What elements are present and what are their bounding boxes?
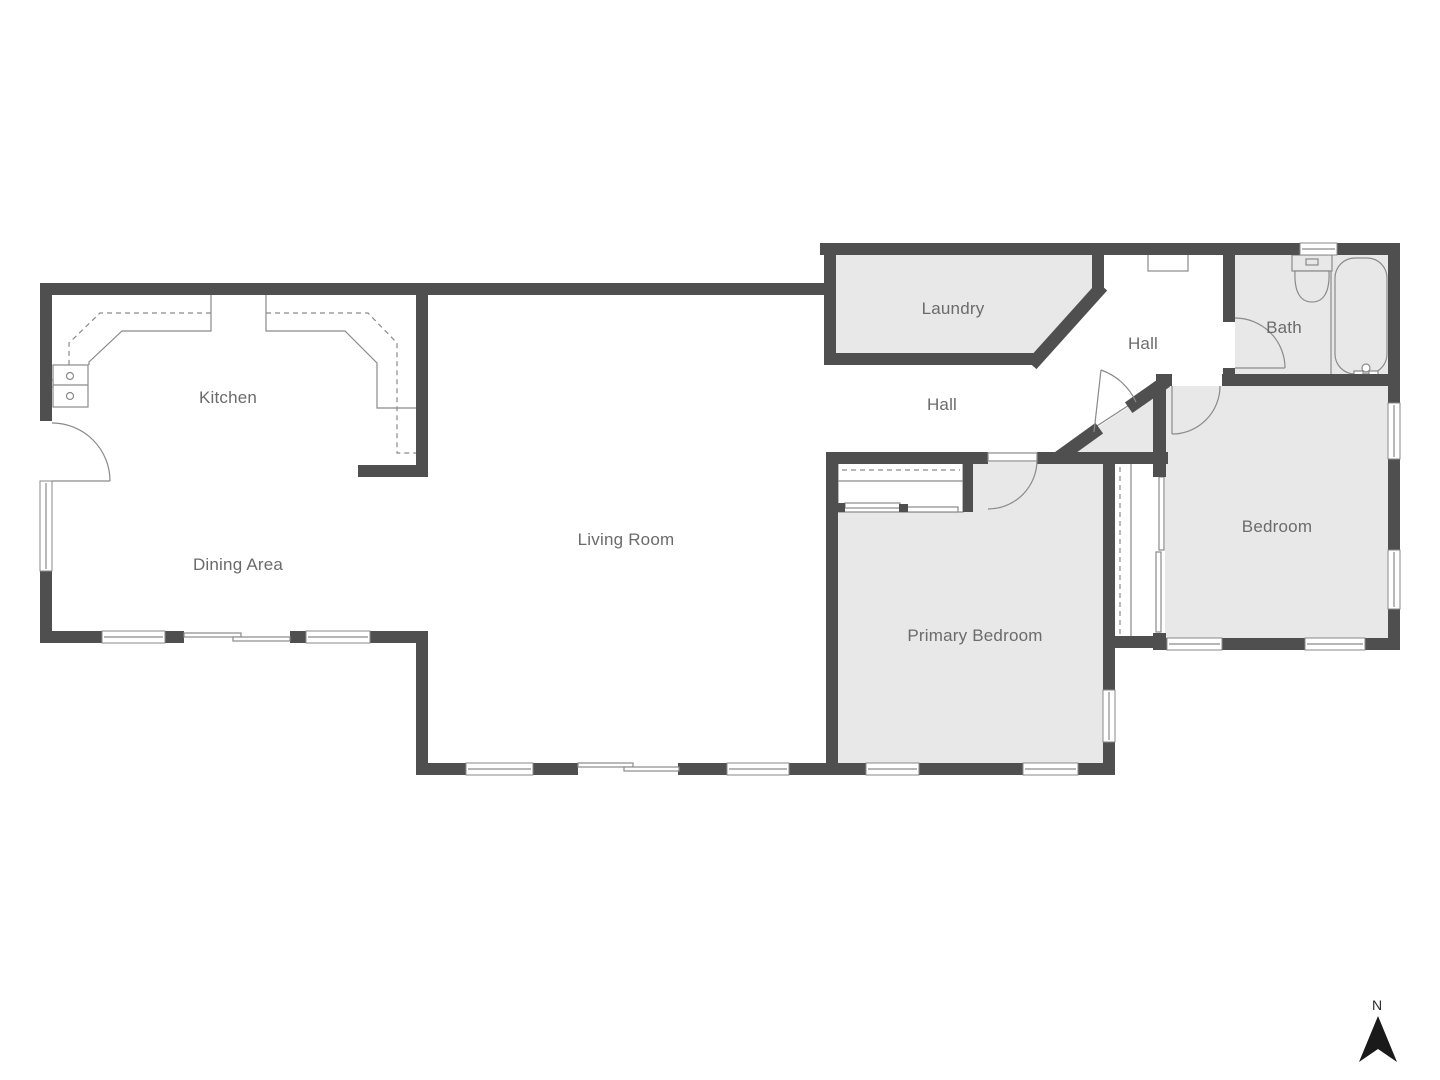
north-arrow-icon <box>1359 1016 1397 1062</box>
wall-bath-bottom <box>1222 374 1388 386</box>
wall-primary-bottom <box>919 763 1023 775</box>
wall-bedroom-bottom <box>1365 638 1400 650</box>
window-dining-1 <box>102 631 165 643</box>
kitchen-sink <box>53 365 88 407</box>
window-bath-top <box>1300 243 1337 255</box>
door-entry <box>52 423 110 481</box>
bedroom-floor <box>1165 386 1388 638</box>
window-dining-2 <box>306 631 370 643</box>
kitchen-counters <box>43 295 416 453</box>
wall-kitchen-stub <box>358 465 428 477</box>
closet-slider-bottom <box>1156 552 1161 632</box>
window-bedroom-bottom-2 <box>1305 638 1365 650</box>
primary-closet-slider-right <box>900 507 958 512</box>
wall-living-bottom <box>533 763 578 775</box>
window-primary-1 <box>866 763 919 775</box>
wall-laundry-right-stub <box>1092 243 1104 291</box>
wall-living-bottom <box>416 763 466 775</box>
wall-kitchen-right <box>416 283 428 477</box>
window-entry-wall <box>40 481 52 571</box>
window-bedroom-right-2 <box>1388 550 1400 609</box>
wall-top-right-section <box>1337 243 1400 255</box>
wall-primary-closet-stub <box>831 503 845 512</box>
room-label-bath: Bath <box>1266 318 1302 338</box>
sliding-door-dining <box>184 633 290 641</box>
room-label-hall-lower: Hall <box>927 395 957 415</box>
wall-step <box>416 631 428 775</box>
room-label-bedroom: Bedroom <box>1242 517 1312 537</box>
window-living-2 <box>727 763 789 775</box>
wall-primary-top <box>1037 452 1168 464</box>
sliding-door-living <box>578 763 679 771</box>
wall-primary-bottom <box>826 763 866 775</box>
primary-closet-slider-left <box>845 503 900 508</box>
room-label-primary-bedroom: Primary Bedroom <box>907 626 1042 646</box>
wall-closet-left <box>1103 453 1115 648</box>
wall-living-bottom <box>678 763 727 775</box>
room-label-living-room: Living Room <box>578 530 675 550</box>
room-label-kitchen: Kitchen <box>199 388 257 408</box>
wall-dining-bottom <box>40 631 102 643</box>
wall-right-exterior <box>1388 459 1400 550</box>
room-label-laundry: Laundry <box>922 299 985 319</box>
wall-right-exterior <box>1388 255 1400 403</box>
toilet-tank <box>1292 255 1332 271</box>
counter-left-edge <box>89 295 211 365</box>
counter-right-edge <box>266 295 416 408</box>
window-primary-right <box>1103 690 1115 742</box>
wall-primary-left <box>826 453 838 775</box>
bathtub <box>1335 258 1387 374</box>
wall-closet-bottom <box>1103 636 1166 648</box>
upper-cabinet-right-dashed <box>266 313 416 453</box>
upper-cabinet-left-dashed <box>69 313 211 365</box>
wall-primary-closet-jamb <box>963 453 973 512</box>
wall-left-upper <box>40 283 52 421</box>
room-label-hall-upper: Hall <box>1128 334 1158 354</box>
sliding-doors <box>184 633 679 771</box>
floor-plan: Kitchen Dining Area Living Room Hall Lau… <box>0 0 1440 1080</box>
wall-bath-left <box>1223 243 1235 322</box>
wall-primary-right <box>1103 742 1115 775</box>
floor-plan-drawing <box>0 0 1440 1080</box>
closet-slider-top <box>1159 477 1164 550</box>
window-primary-2 <box>1023 763 1078 775</box>
wall-dining-bottom <box>165 631 184 643</box>
room-label-dining-area: Dining Area <box>193 555 283 575</box>
wall-bedroom-bottom <box>1222 638 1305 650</box>
wall-laundry-bottom <box>824 353 1040 365</box>
wall-top-left-section <box>40 283 836 295</box>
window-bedroom-right-1 <box>1388 403 1400 459</box>
wall-primary-closet-stub <box>899 504 908 512</box>
window-living-1 <box>466 763 533 775</box>
window-bedroom-bottom-1 <box>1167 638 1222 650</box>
wall-laundry-left <box>824 243 836 365</box>
north-label: N <box>1372 997 1382 1013</box>
hall-shelf <box>1148 253 1188 271</box>
wall-primary-right <box>1103 648 1115 690</box>
wall-dining-bottom <box>290 631 306 643</box>
